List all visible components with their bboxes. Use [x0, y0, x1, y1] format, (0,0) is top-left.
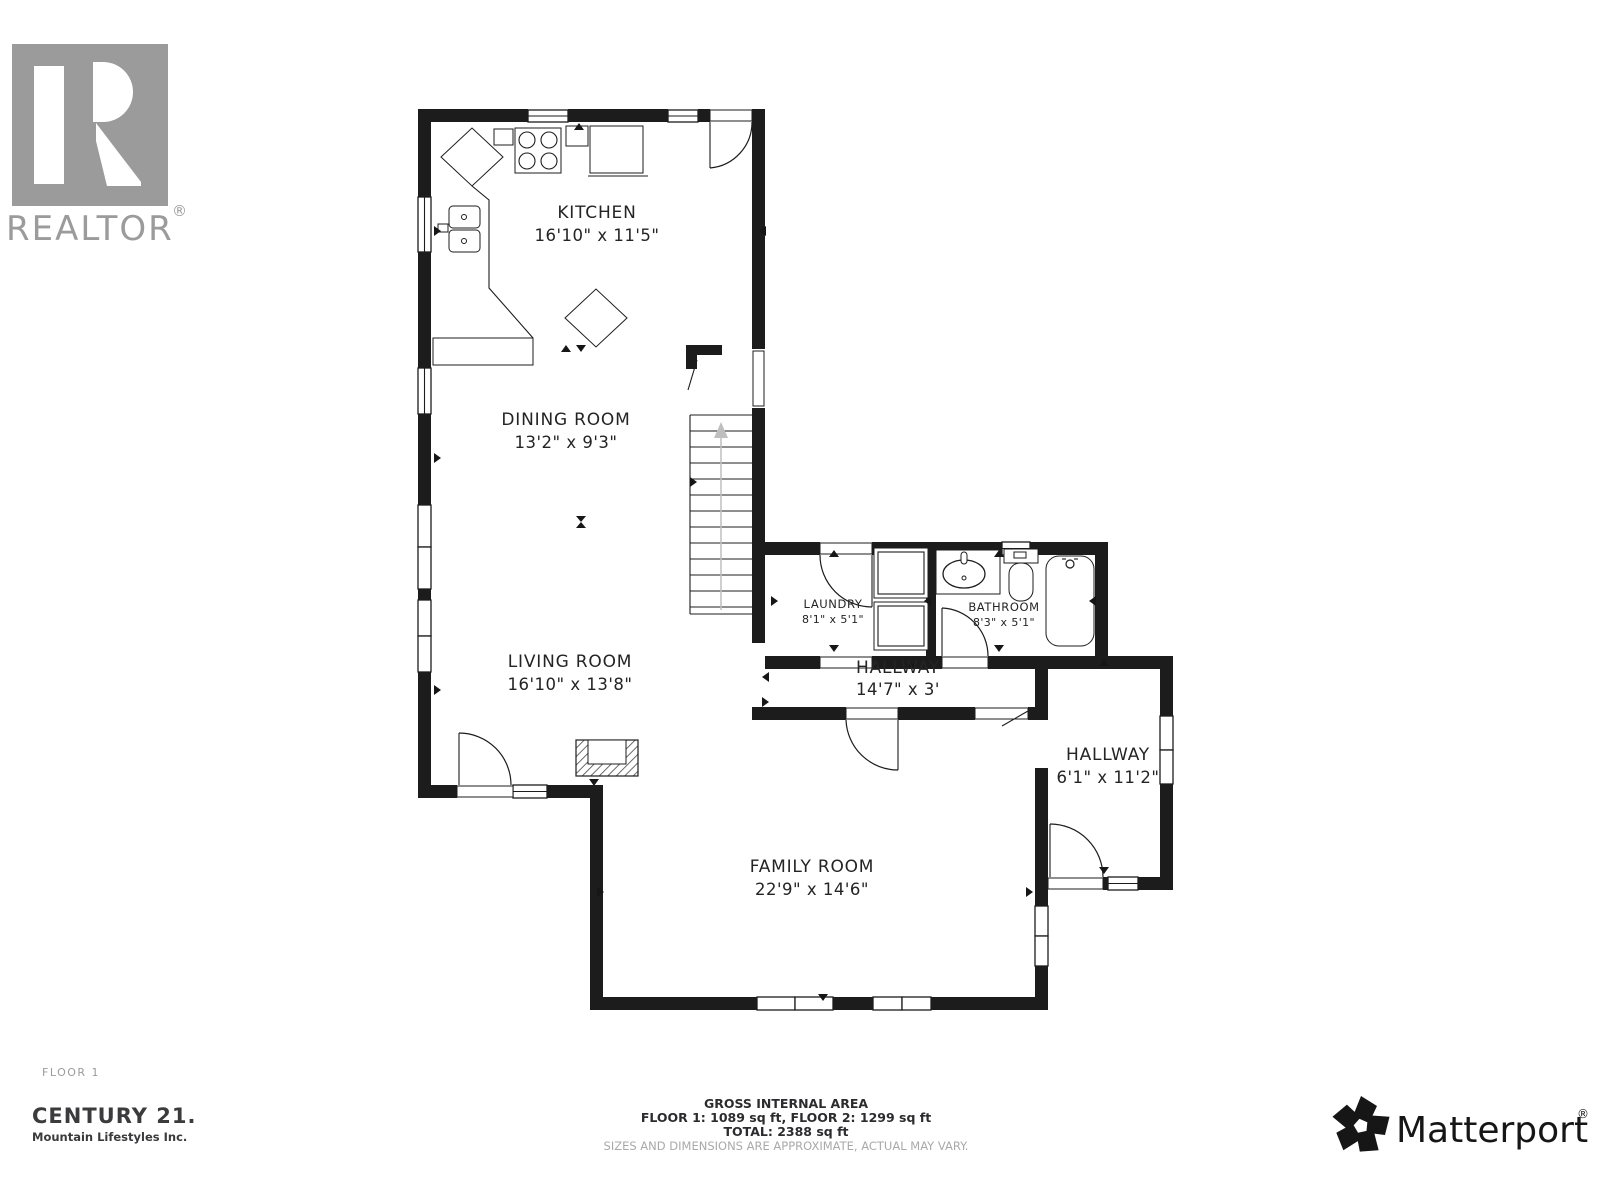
- floor-areas-line: FLOOR 1: 1089 sq ft, FLOOR 2: 1299 sq ft: [641, 1110, 931, 1125]
- matterport-pinwheel-icon: [1330, 1096, 1394, 1160]
- counter-icon: [433, 338, 533, 365]
- floor-label: FLOOR 1: [42, 1066, 100, 1079]
- room-dims-kitchen: 16'10" x 11'5": [535, 226, 660, 245]
- counter-edge: [472, 186, 533, 338]
- window-icon: [873, 997, 931, 1010]
- room-label-hallway-2: HALLWAY: [1066, 745, 1150, 765]
- door-icon: [457, 733, 513, 797]
- kitchen-sink-icon: [438, 206, 480, 252]
- gross-internal-area-title: GROSS INTERNAL AREA: [704, 1096, 868, 1111]
- window-icon: [1160, 716, 1173, 784]
- room-label-bathroom: BATHROOM: [968, 600, 1039, 614]
- floorplan-canvas: REALTOR ®: [0, 0, 1600, 1200]
- window-icon: [1035, 906, 1048, 966]
- room-label-laundry: LAUNDRY: [804, 597, 863, 611]
- room-label-hallway-1: HALLWAY: [856, 658, 940, 678]
- century21-subtitle: Mountain Lifestyles Inc.: [32, 1130, 187, 1144]
- century21-wordmark: CENTURY 21.: [32, 1104, 196, 1128]
- counter-icon: [494, 129, 513, 145]
- toilet-icon: [1004, 549, 1038, 601]
- room-dims-dining: 13'2" x 9'3": [515, 433, 618, 452]
- window-icon: [1108, 877, 1138, 890]
- room-label-dining: DINING ROOM: [501, 410, 630, 430]
- room-dims-bathroom: 8'3" x 5'1": [973, 616, 1035, 629]
- stairs: [690, 415, 752, 614]
- stairs-up-arrow-icon: [714, 422, 728, 438]
- door-icon: [846, 708, 898, 770]
- room-dims-living: 16'10" x 13'8": [508, 675, 633, 694]
- window-icon: [418, 197, 431, 252]
- kitchen-fixtures: [433, 126, 648, 365]
- bathroom-fixtures: [936, 549, 1094, 646]
- disclaimer-line: SIZES AND DIMENSIONS ARE APPROXIMATE, AC…: [604, 1139, 969, 1153]
- room-label-living: LIVING ROOM: [508, 652, 632, 672]
- footer: FLOOR 1 CENTURY 21. Mountain Lifestyles …: [32, 1066, 1589, 1160]
- room-label-family: FAMILY ROOM: [750, 857, 875, 877]
- stove-icon: [515, 128, 561, 173]
- floorplan-page: REALTOR ®: [0, 0, 1600, 1200]
- window-icon: [668, 110, 698, 122]
- window-icon: [528, 110, 568, 122]
- room-dims-hallway-2: 6'1" x 11'2": [1057, 768, 1160, 787]
- washer-dryer-icon: [874, 548, 928, 650]
- room-dims-hallway-1: 14'7" x 3': [856, 680, 940, 699]
- door-icon: [975, 708, 1028, 726]
- realtor-logo-r-bar: [34, 66, 64, 184]
- window-icon: [418, 600, 431, 672]
- fireplace-icon: [576, 740, 638, 776]
- room-label-kitchen: KITCHEN: [557, 203, 636, 223]
- fridge-icon: [588, 126, 648, 176]
- matterport-logo: Matterport ®: [1330, 1096, 1589, 1160]
- bathroom-sink-icon: [936, 550, 1000, 594]
- window-icon: [513, 785, 547, 798]
- room-dims-family: 22'9" x 14'6": [755, 880, 869, 899]
- door-icon: [688, 351, 764, 406]
- window-icon: [418, 505, 431, 589]
- realtor-registered-icon: ®: [172, 202, 187, 220]
- total-area-line: TOTAL: 2388 sq ft: [724, 1124, 849, 1139]
- door-icon: [710, 110, 752, 168]
- realtor-wordmark: REALTOR: [6, 209, 174, 249]
- kitchen-island-icon: [565, 289, 627, 347]
- realtor-logo: REALTOR ®: [6, 44, 187, 249]
- matterport-registered-icon: ®: [1577, 1107, 1589, 1121]
- door-icon: [1048, 824, 1103, 889]
- bathtub-icon: [1046, 556, 1094, 646]
- room-dims-laundry: 8'1" x 5'1": [802, 613, 864, 626]
- matterport-wordmark: Matterport: [1396, 1110, 1588, 1151]
- window-icon: [418, 368, 431, 414]
